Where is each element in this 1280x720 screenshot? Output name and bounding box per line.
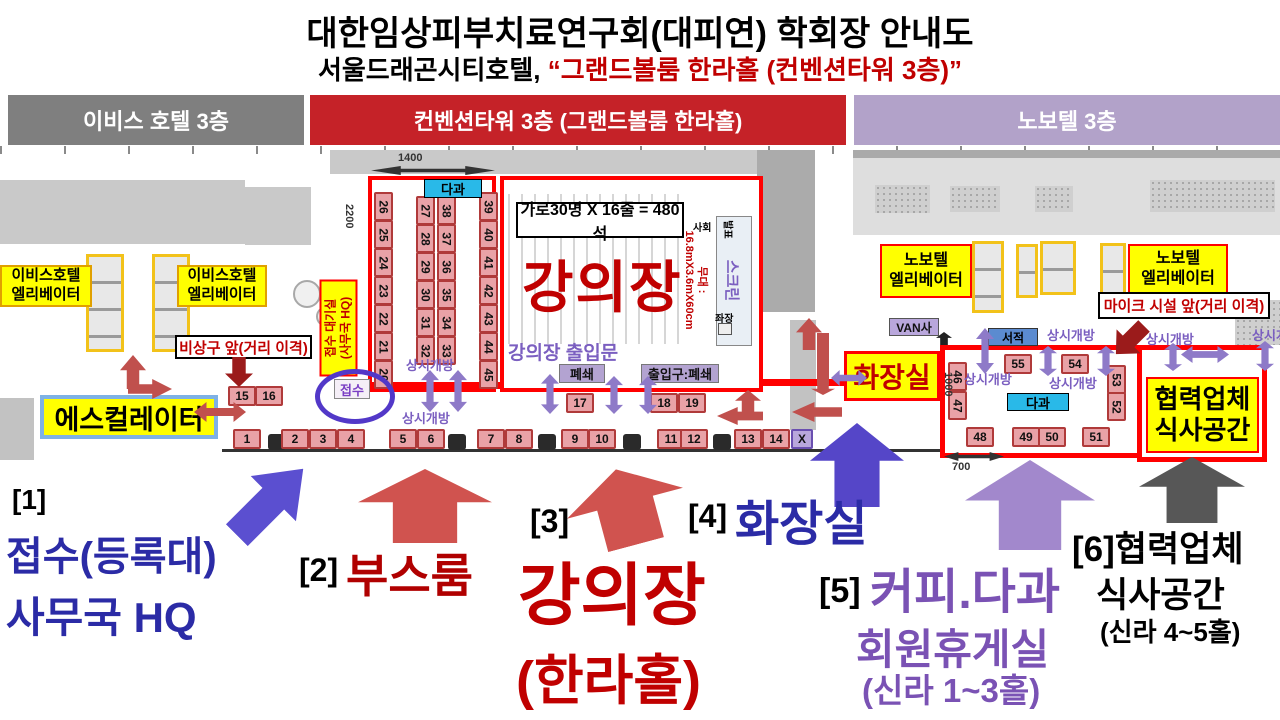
header-convention-floor: 컨벤션타워 3층 (그랜드볼룸 한라홀) bbox=[310, 95, 846, 145]
novotel-elevator-shaft bbox=[1016, 244, 1038, 298]
legend-arrow-6-icon bbox=[1139, 457, 1245, 523]
lecture-hall-label: 강의장 bbox=[522, 243, 683, 324]
corridor-fixture bbox=[713, 434, 731, 450]
dim-700: 700 bbox=[952, 461, 970, 473]
screen-label: 스크린 bbox=[723, 259, 744, 300]
booth-marker-51: 51 bbox=[1082, 427, 1110, 447]
corridor-fixture bbox=[448, 434, 466, 450]
booth-marker-42: 42 bbox=[479, 276, 498, 305]
booth-marker-X: X bbox=[791, 429, 813, 449]
booth-marker-54: 54 bbox=[1061, 354, 1089, 374]
escalator-label: 에스컬레이터 bbox=[40, 395, 218, 439]
legend-4-restroom: 화장실 bbox=[735, 484, 867, 554]
reception-waiting-label: 접수 대기실 (사무국 HQ) bbox=[320, 280, 358, 377]
arrow-up-icon bbox=[120, 355, 146, 389]
plan-tower-wall bbox=[757, 150, 815, 312]
booth-marker-21: 21 bbox=[374, 332, 393, 361]
booth-marker-17: 17 bbox=[566, 393, 594, 413]
booth-marker-35: 35 bbox=[437, 280, 456, 309]
reception-circle bbox=[315, 369, 395, 424]
booth-marker-49: 49 bbox=[1012, 427, 1040, 447]
booth-marker-7: 7 bbox=[477, 429, 505, 449]
booth-marker-8: 8 bbox=[505, 429, 533, 449]
legend-3-halla-hall: (한라홀) bbox=[516, 636, 701, 715]
session-chair-label: 좌장 bbox=[715, 310, 733, 325]
van-company-label: VAN사 bbox=[889, 318, 939, 336]
booth-marker-26: 26 bbox=[374, 192, 393, 221]
booth-marker-3: 3 bbox=[309, 429, 337, 449]
ibis-elevator-label-1: 이비스호텔 엘리베이터 bbox=[0, 265, 92, 307]
arrow-left-icon bbox=[717, 407, 763, 425]
novotel-elevator-shaft bbox=[1100, 243, 1126, 295]
always-open-label: 상시개방 bbox=[1146, 329, 1194, 348]
header-ibis-floor: 이비스 호텔 3층 bbox=[8, 95, 304, 145]
partner-dining-label: 협력업체 식사공간 bbox=[1146, 377, 1259, 453]
booth-marker-30: 30 bbox=[416, 280, 435, 309]
header-novotel-floor: 노보텔 3층 bbox=[854, 95, 1280, 145]
plan-wall bbox=[0, 398, 34, 460]
legend-arrow-1-icon bbox=[214, 446, 326, 558]
dim-2200: 2200 bbox=[343, 204, 355, 244]
corridor-fixture bbox=[623, 434, 641, 450]
booth-marker-45: 45 bbox=[479, 360, 498, 389]
booth-marker-2: 2 bbox=[281, 429, 309, 449]
subtitle-hall: “그랜드볼룸 한라홀 (컨벤션타워 3층)” bbox=[548, 55, 962, 85]
booth-marker-28: 28 bbox=[416, 224, 435, 253]
legend-2-booth-room: 부스룸 bbox=[346, 540, 473, 606]
novotel-elevator-shaft bbox=[972, 241, 1004, 313]
page-title: 대한임상피부치료연구회(대피연) 학회장 안내도 bbox=[0, 6, 1280, 55]
presenter-label: 발표 bbox=[723, 217, 736, 243]
plan-room bbox=[1035, 186, 1073, 212]
novotel-elevator-label-2: 노보텔 엘리베이터 bbox=[1128, 244, 1228, 294]
legend-4-num: [4] bbox=[688, 498, 727, 535]
legend-3-num: [3] bbox=[530, 503, 569, 540]
ibis-elevator-label-2: 이비스호텔 엘리베이터 bbox=[177, 265, 267, 307]
booth-marker-27: 27 bbox=[416, 196, 435, 225]
booth-marker-18: 18 bbox=[650, 393, 678, 413]
booth-marker-41: 41 bbox=[479, 248, 498, 277]
corridor-fixture bbox=[538, 434, 556, 450]
legend-1-num: [1] bbox=[12, 484, 46, 516]
legend-1-hq: 사무국 HQ bbox=[6, 584, 197, 645]
capacity-note: 가로30명 X 16줄 = 480석 bbox=[516, 202, 684, 238]
dim-1000: 1000 bbox=[942, 372, 954, 412]
plan-room bbox=[875, 185, 930, 213]
booth-marker-10: 10 bbox=[588, 429, 616, 449]
always-open-label: 상시개방 bbox=[402, 408, 450, 427]
booth-marker-36: 36 bbox=[437, 252, 456, 281]
hall-doors-label: 강의장 출입문 bbox=[508, 338, 618, 365]
refreshments-label-2: 다과 bbox=[1007, 393, 1069, 411]
booth-marker-9: 9 bbox=[561, 429, 589, 449]
books-label: 서적 bbox=[988, 328, 1038, 346]
booth-marker-44: 44 bbox=[479, 332, 498, 361]
legend-6-dining: 식사공간 bbox=[1096, 567, 1225, 618]
booth-marker-37: 37 bbox=[437, 224, 456, 253]
always-open-label: 상시개방 bbox=[1049, 373, 1097, 392]
refreshments-label: 다과 bbox=[424, 179, 482, 198]
booth-marker-1: 1 bbox=[233, 429, 261, 449]
stage-size-label: 무대 : 16.8mX3.6mX60cm bbox=[680, 225, 708, 335]
booth-marker-34: 34 bbox=[437, 308, 456, 337]
arrow-shaft bbox=[817, 333, 829, 385]
booth-marker-19: 19 bbox=[678, 393, 706, 413]
legend-3-lecture-hall: 강의장 bbox=[518, 540, 706, 639]
plan-wall bbox=[245, 187, 311, 245]
booth-marker-48: 48 bbox=[966, 427, 994, 447]
plan-room bbox=[950, 186, 1000, 212]
booth-marker-12: 12 bbox=[680, 429, 708, 449]
novotel-elevator-label-1: 노보텔 엘리베이터 bbox=[880, 244, 972, 298]
always-open-label: 상시개방 bbox=[1047, 325, 1095, 344]
booth-marker-13: 13 bbox=[734, 429, 762, 449]
booth-marker-31: 31 bbox=[416, 308, 435, 337]
booth-marker-22: 22 bbox=[374, 304, 393, 333]
booth-marker-43: 43 bbox=[479, 304, 498, 333]
legend-5-shilla-halls: (신라 1~3홀) bbox=[862, 664, 1040, 712]
booth-marker-25: 25 bbox=[374, 220, 393, 249]
always-open-label: 상시개방 bbox=[964, 369, 1012, 388]
always-open-label: 상시개방 bbox=[1252, 325, 1280, 344]
booth-marker-14: 14 bbox=[762, 429, 790, 449]
booth-marker-5: 5 bbox=[389, 429, 417, 449]
booth-marker-23: 23 bbox=[374, 276, 393, 305]
legend-2-num: [2] bbox=[299, 552, 338, 589]
emergency-exit-note: 비상구 앞(거리 이격) bbox=[175, 335, 312, 359]
venue-map: 대한임상피부치료연구회(대피연) 학회장 안내도 서울드래곤시티호텔, “그랜드… bbox=[0, 0, 1280, 720]
legend-5-num: [5] bbox=[819, 572, 861, 611]
booth-marker-4: 4 bbox=[337, 429, 365, 449]
distancing-arrow-down-icon bbox=[225, 357, 253, 387]
round-table bbox=[293, 280, 321, 308]
novotel-elevator-shaft bbox=[1040, 241, 1076, 295]
booth-marker-24: 24 bbox=[374, 248, 393, 277]
subtitle-hotel: 서울드래곤시티호텔, bbox=[318, 55, 541, 85]
booth-marker-6: 6 bbox=[417, 429, 445, 449]
entrance-closed-label: 출입구:폐쇄 bbox=[641, 364, 719, 383]
arrow-up-icon bbox=[735, 390, 761, 414]
legend-1-reception: 접수(등록대) bbox=[6, 524, 217, 582]
booth-marker-15: 15 bbox=[228, 386, 256, 406]
plan-wall bbox=[853, 150, 1280, 158]
plan-room bbox=[1150, 180, 1275, 212]
booth-marker-38: 38 bbox=[437, 196, 456, 225]
legend-arrow-2-icon bbox=[358, 469, 492, 543]
closed-label: 폐쇄 bbox=[559, 364, 605, 383]
booth-marker-29: 29 bbox=[416, 252, 435, 281]
legend-6-partner: [6]협력업체 bbox=[1072, 521, 1244, 572]
booth-marker-52: 52 bbox=[1107, 392, 1126, 421]
mic-distance-note: 마이크 시설 앞(거리 이격) bbox=[1098, 292, 1270, 319]
booth-marker-50: 50 bbox=[1038, 427, 1066, 447]
legend-6-shilla-halls: (신라 4~5홀) bbox=[1100, 612, 1240, 649]
dim-1400: 1400 bbox=[398, 152, 422, 164]
plan-wall bbox=[0, 180, 245, 244]
booth-marker-16: 16 bbox=[255, 386, 283, 406]
legend-5-coffee: 커피.다과 bbox=[870, 552, 1060, 622]
booth-marker-40: 40 bbox=[479, 220, 498, 249]
